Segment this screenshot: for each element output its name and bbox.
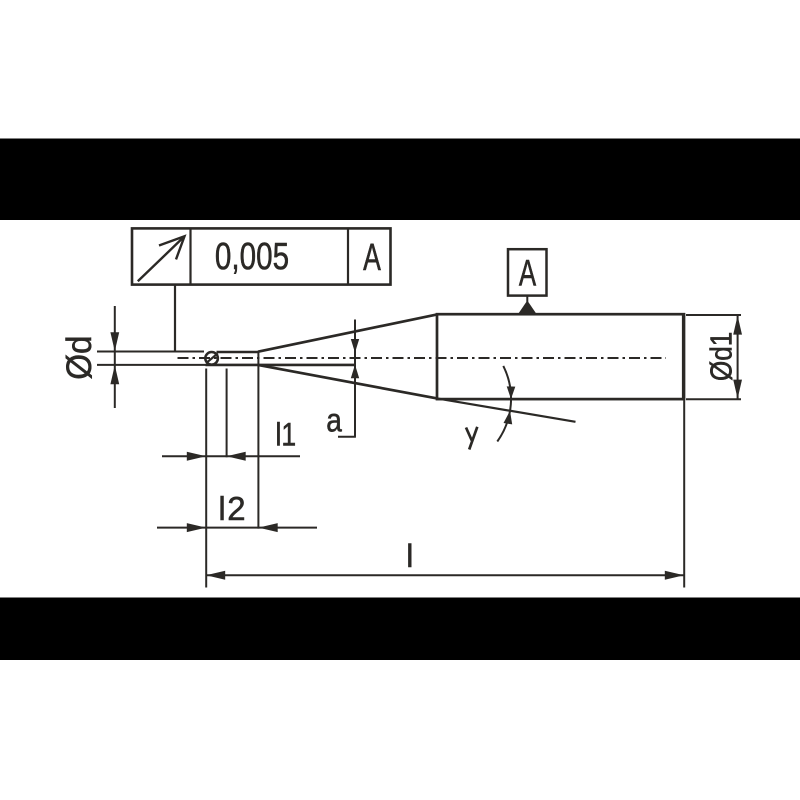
svg-text:Ød1: Ød1 [704,332,739,381]
svg-text:a: a [326,402,342,439]
svg-text:l1: l1 [276,417,297,453]
svg-text:l2: l2 [218,490,247,527]
svg-text:l: l [406,538,413,574]
svg-text:0,005: 0,005 [215,235,289,277]
svg-text:A: A [519,252,537,294]
svg-text:A: A [363,235,381,278]
svg-text:Ød: Ød [60,335,99,379]
